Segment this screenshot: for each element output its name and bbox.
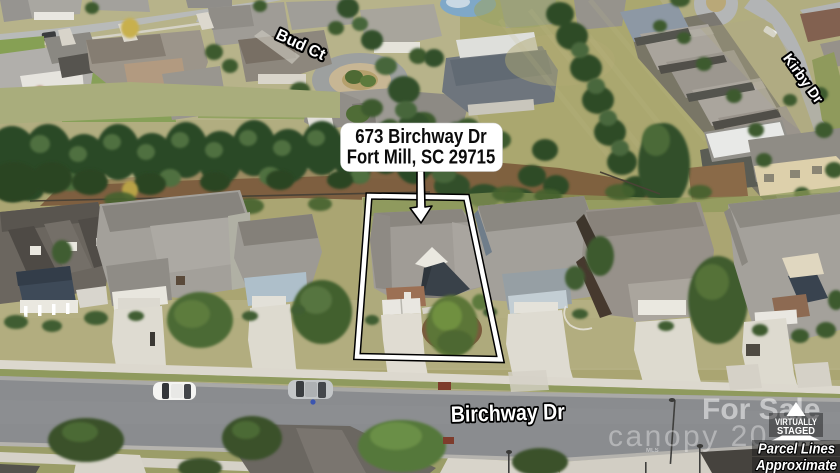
svg-text:Approximate: Approximate bbox=[755, 458, 837, 473]
svg-text:Birchway Dr: Birchway Dr bbox=[450, 399, 565, 427]
svg-text:STAGED: STAGED bbox=[777, 425, 815, 437]
svg-text:canopy 20: canopy 20 bbox=[608, 420, 769, 453]
svg-text:Parcel Lines: Parcel Lines bbox=[758, 442, 835, 458]
svg-text:673 Birchway Dr: 673 Birchway Dr bbox=[355, 126, 487, 148]
svg-text:MLS: MLS bbox=[646, 448, 659, 454]
svg-text:Fort Mill, SC 29715: Fort Mill, SC 29715 bbox=[347, 147, 496, 169]
